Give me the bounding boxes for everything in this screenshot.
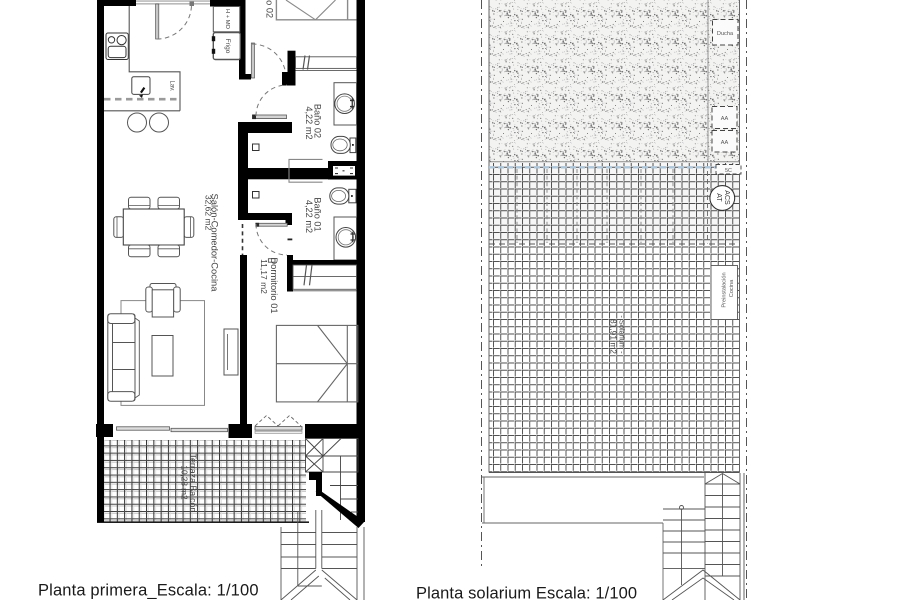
- svg-text:Planta primera_Escala: 1/100: Planta primera_Escala: 1/100: [38, 582, 259, 600]
- svg-text:Cocina: Cocina: [729, 279, 735, 297]
- svg-text:81,91 m2: 81,91 m2: [608, 319, 618, 354]
- svg-text:AA: AA: [721, 140, 729, 146]
- svg-text:11,17 m2: 11,17 m2: [259, 259, 269, 294]
- svg-text:H + MO: H + MO: [224, 9, 230, 30]
- svg-text:4,22 m2: 4,22 m2: [304, 106, 314, 139]
- svg-text:AA: AA: [721, 116, 729, 122]
- svg-text:Dormitorio 02: Dormitorio 02: [264, 0, 274, 18]
- svg-text:AT: AT: [715, 193, 722, 202]
- svg-text:Lav.: Lav.: [169, 81, 175, 92]
- svg-text:Ducha: Ducha: [717, 31, 734, 37]
- svg-text:10,28 m2: 10,28 m2: [180, 465, 189, 500]
- svg-text:Frigo: Frigo: [224, 39, 231, 54]
- svg-text:Dormitorio 01: Dormitorio 01: [269, 257, 280, 313]
- svg-text:32,62 m2: 32,62 m2: [203, 195, 213, 231]
- svg-text:Terraza Balcón: Terraza Balcón: [188, 454, 198, 513]
- svg-text:Preinstalación: Preinstalación: [721, 272, 727, 307]
- svg-text:4,22 m2: 4,22 m2: [304, 200, 314, 233]
- svg-text:Planta solarium Escala: 1/100: Planta solarium Escala: 1/100: [416, 585, 637, 600]
- svg-text:ACS: ACS: [723, 190, 730, 205]
- svg-text:5C: 5C: [725, 168, 732, 174]
